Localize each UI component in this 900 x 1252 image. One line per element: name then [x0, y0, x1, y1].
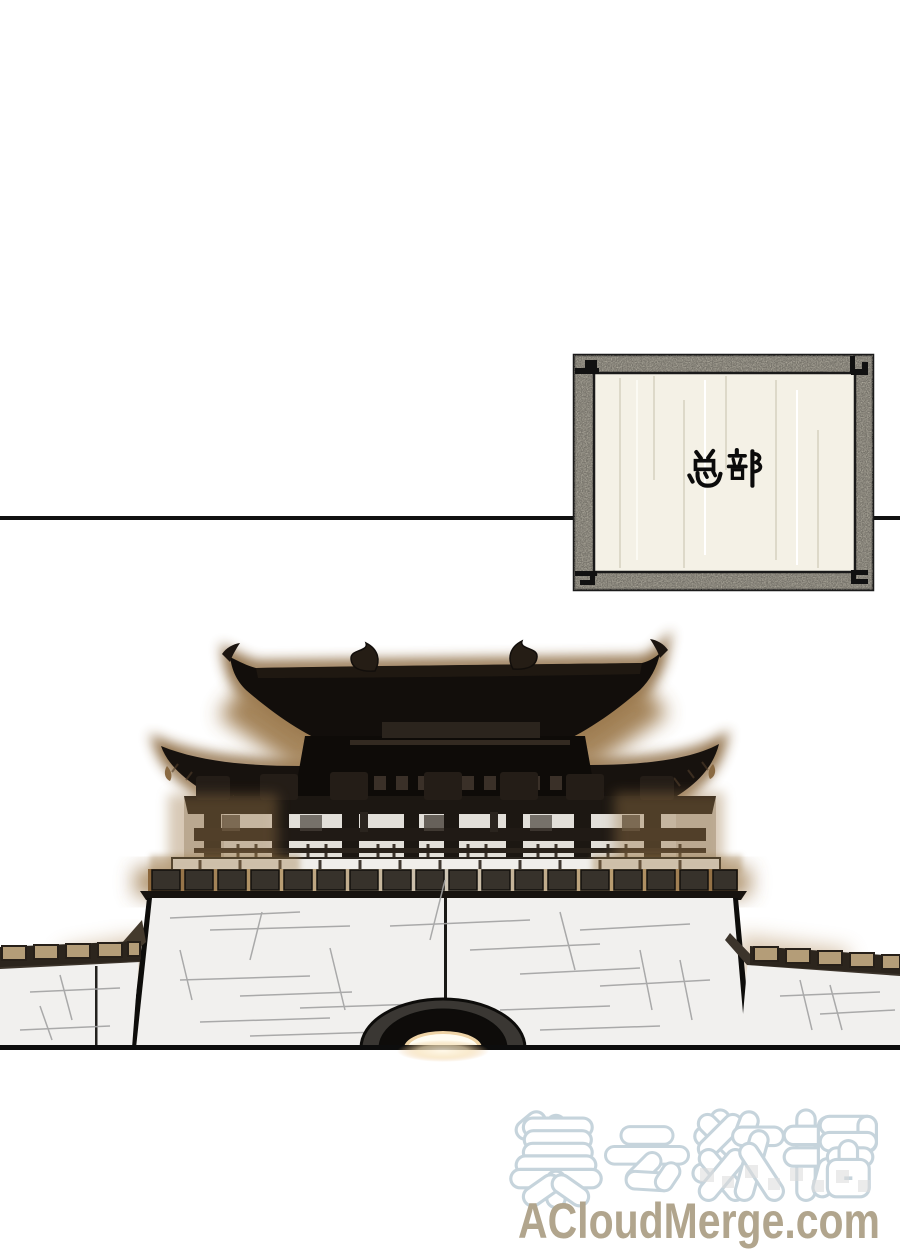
svg-text:ACloudMerge.com: ACloudMerge.com	[518, 1193, 880, 1249]
